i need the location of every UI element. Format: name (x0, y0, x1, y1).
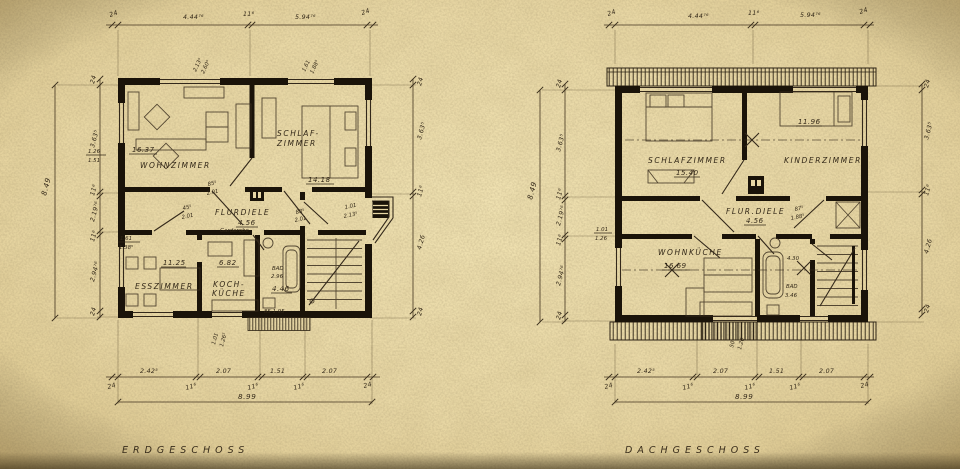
scan-shadow (0, 452, 960, 469)
blueprint-page: 24 4.44⁷⁶ 11⁶ 5.94⁷⁶ 24 24 2.42⁵ 11⁶ 2.0… (0, 0, 960, 469)
scan-vignette (0, 0, 960, 469)
floorplan-drawing: 24 4.44⁷⁶ 11⁶ 5.94⁷⁶ 24 24 2.42⁵ 11⁶ 2.0… (0, 0, 960, 469)
